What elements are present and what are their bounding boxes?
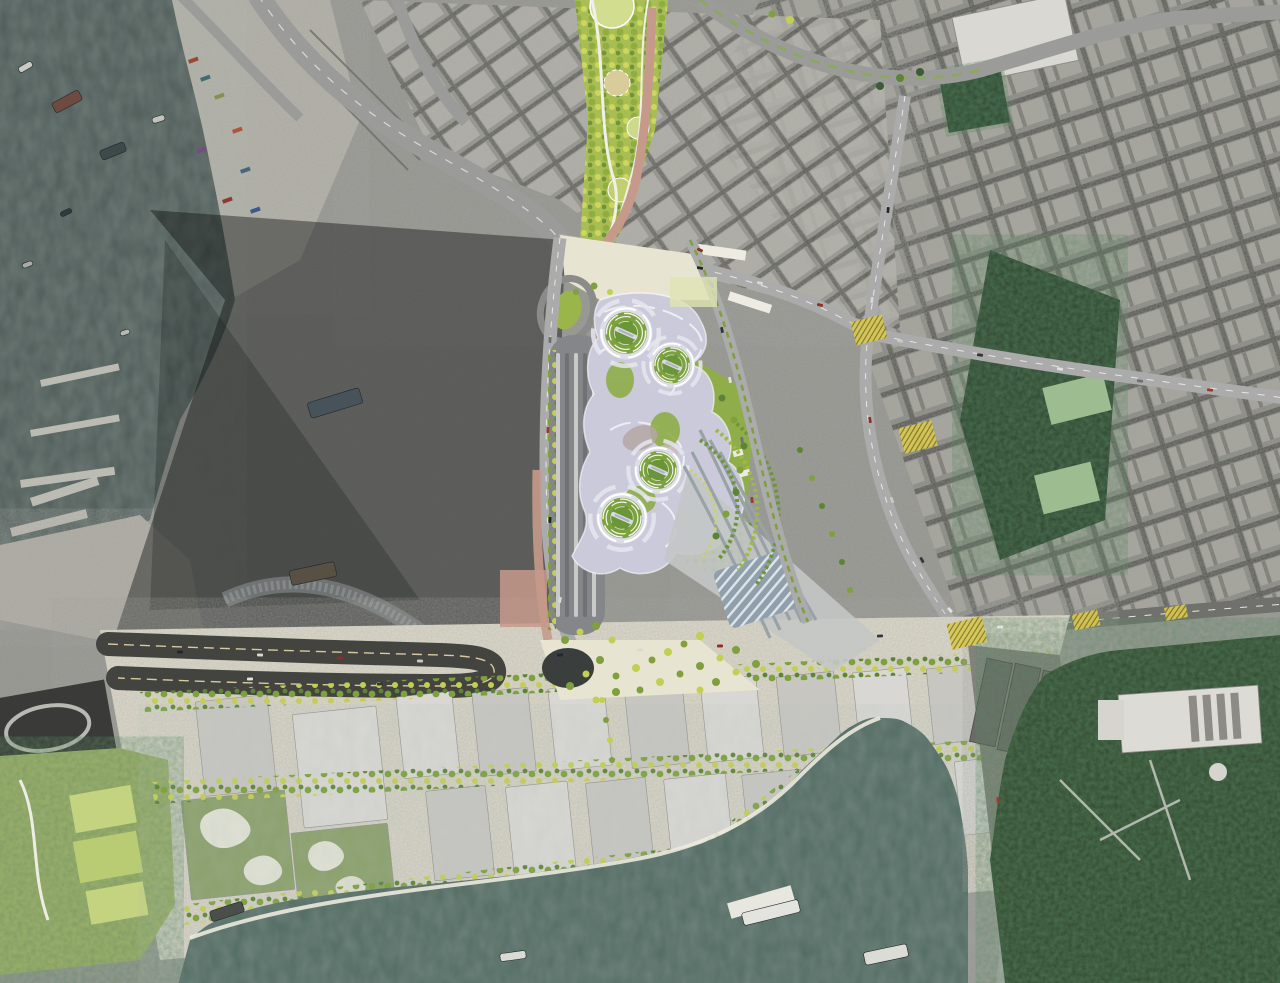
vehicle	[177, 650, 183, 653]
tree	[839, 559, 845, 565]
tree	[696, 632, 704, 640]
tree	[786, 16, 794, 24]
tree	[809, 475, 815, 481]
tree	[593, 697, 600, 704]
plaza-pond	[542, 648, 594, 688]
vehicle	[548, 337, 551, 343]
tree	[741, 443, 748, 450]
tree	[733, 489, 740, 496]
tree	[896, 74, 904, 82]
vehicle	[797, 639, 803, 642]
tree	[591, 283, 598, 290]
tree	[797, 447, 803, 453]
tree	[717, 655, 724, 662]
tree	[632, 664, 640, 672]
tree	[613, 673, 620, 680]
tree	[566, 682, 574, 690]
tree	[876, 82, 884, 90]
vehicle	[877, 634, 883, 637]
tree	[719, 395, 726, 402]
tree	[696, 662, 704, 670]
tree	[916, 68, 924, 76]
vehicle	[997, 625, 1003, 628]
tree	[561, 636, 569, 644]
vehicle	[257, 653, 263, 656]
vehicle	[548, 517, 551, 523]
tree	[732, 646, 740, 654]
hatched-paving	[670, 277, 717, 307]
vehicle	[417, 659, 423, 662]
tree	[829, 531, 835, 537]
tree	[713, 533, 720, 540]
tree	[664, 648, 672, 656]
tree	[592, 622, 600, 630]
vehicle	[717, 644, 723, 647]
tree	[737, 467, 744, 474]
tree	[847, 587, 853, 593]
aerial-masterplan-map: Aerial photomontage masterplan — harbour…	[0, 0, 1280, 983]
masterplan-building	[292, 706, 387, 828]
tree	[609, 757, 615, 763]
tree	[573, 289, 579, 295]
vehicle	[247, 677, 253, 680]
vehicle	[996, 797, 999, 803]
vehicle	[637, 648, 643, 651]
masterplan-building	[181, 790, 295, 900]
tree	[697, 687, 704, 694]
tree	[583, 671, 590, 678]
map-canvas: Aerial photomontage masterplan — harbour…	[0, 0, 1280, 983]
tree	[612, 688, 620, 696]
tree	[656, 678, 664, 686]
tree	[596, 656, 604, 664]
vehicle	[986, 717, 989, 723]
tree	[577, 629, 584, 636]
tree	[607, 289, 613, 295]
tree	[712, 678, 720, 686]
masterplan-building	[396, 691, 460, 778]
tree	[649, 657, 656, 664]
tree	[677, 671, 684, 678]
tree	[752, 660, 760, 668]
vehicle	[377, 682, 383, 685]
tree	[637, 687, 644, 694]
vehicle	[337, 656, 343, 659]
vehicle	[886, 207, 889, 213]
tree	[819, 503, 825, 509]
salmon-plaza-block	[500, 570, 547, 627]
tree	[599, 697, 605, 703]
tree	[681, 641, 688, 648]
vehicle	[557, 653, 563, 656]
tree	[603, 717, 609, 723]
tree	[769, 11, 776, 18]
tree	[607, 737, 613, 743]
tree	[609, 637, 616, 644]
tree	[723, 511, 730, 518]
masterplan-building	[425, 785, 494, 881]
tree	[731, 417, 738, 424]
tree	[733, 669, 740, 676]
vehicle	[546, 427, 549, 433]
